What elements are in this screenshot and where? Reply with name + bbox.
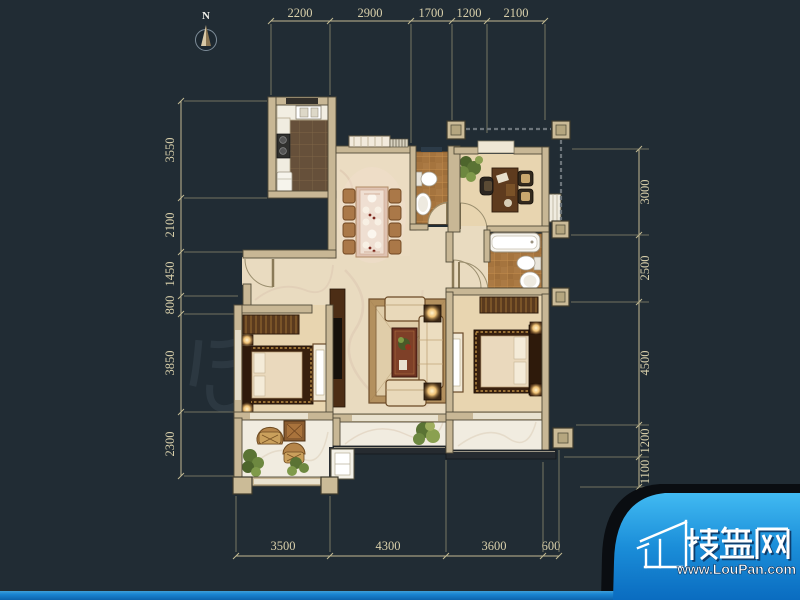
svg-text:2300: 2300 bbox=[163, 432, 177, 457]
svg-text:1700: 1700 bbox=[419, 6, 444, 20]
svg-text:www.LouPan.com: www.LouPan.com bbox=[676, 562, 796, 578]
svg-text:1200: 1200 bbox=[457, 6, 482, 20]
svg-text:2100: 2100 bbox=[163, 213, 177, 238]
svg-text:2100: 2100 bbox=[504, 6, 529, 20]
svg-text:N: N bbox=[202, 10, 210, 22]
svg-text:2900: 2900 bbox=[358, 6, 383, 20]
svg-text:1200: 1200 bbox=[638, 429, 652, 454]
svg-text:3600: 3600 bbox=[482, 539, 507, 553]
svg-text:1100: 1100 bbox=[638, 460, 652, 485]
svg-text:1450: 1450 bbox=[163, 262, 177, 287]
svg-text:3500: 3500 bbox=[271, 539, 296, 553]
svg-text:800: 800 bbox=[163, 296, 177, 315]
svg-text:3550: 3550 bbox=[163, 138, 177, 163]
svg-text:600: 600 bbox=[542, 539, 561, 553]
svg-text:2200: 2200 bbox=[288, 6, 313, 20]
svg-text:4500: 4500 bbox=[638, 351, 652, 376]
svg-text:4300: 4300 bbox=[376, 539, 401, 553]
svg-text:3000: 3000 bbox=[638, 180, 652, 205]
svg-text:2500: 2500 bbox=[638, 256, 652, 281]
svg-text:3850: 3850 bbox=[163, 351, 177, 376]
